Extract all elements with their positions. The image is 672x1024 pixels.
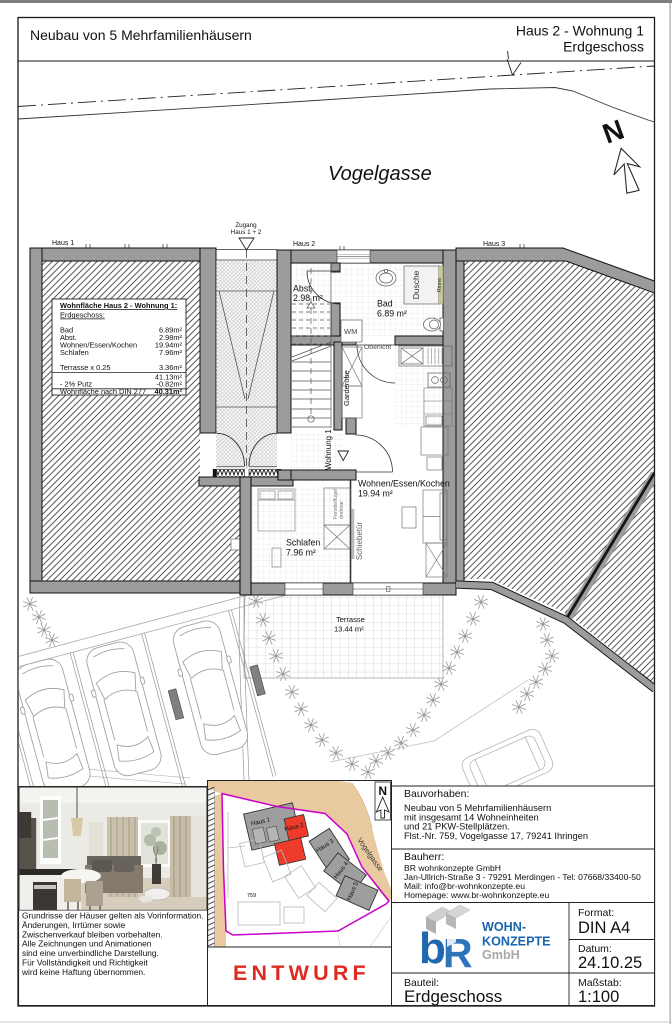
svg-text:WOHN-: WOHN-	[482, 920, 526, 934]
svg-text:7.96 m²: 7.96 m²	[286, 548, 316, 558]
svg-text:Schlafen: Schlafen	[60, 348, 89, 357]
svg-text:Erdgeschoss:: Erdgeschoss:	[60, 311, 105, 320]
svg-text:Terrasse: Terrasse	[336, 615, 365, 624]
svg-text:Erdgeschoss: Erdgeschoss	[404, 987, 502, 1006]
svg-text:Wohnfläche Haus 2 - Wohnung 1:: Wohnfläche Haus 2 - Wohnung 1:	[60, 301, 177, 310]
svg-text:Wohnung 1: Wohnung 1	[324, 429, 333, 470]
svg-text:Flst.-Nr. 759, Vogelgasse 17,: Flst.-Nr. 759, Vogelgasse 17, 79241 Ihri…	[404, 831, 588, 841]
svg-text:Format:: Format:	[578, 907, 614, 919]
svg-text:7.96m²: 7.96m²	[159, 348, 183, 357]
svg-text:ENTWURF: ENTWURF	[233, 961, 370, 985]
svg-text:Wohnfläche nach DIN 277: Wohnfläche nach DIN 277	[60, 387, 146, 396]
svg-text:Haus 2 - Wohnung 1: Haus 2 - Wohnung 1	[516, 23, 644, 39]
svg-text:wird keine Haftung übernommen.: wird keine Haftung übernommen.	[21, 967, 145, 977]
svg-text:Bauvorhaben:: Bauvorhaben:	[404, 788, 469, 800]
svg-text:19.94 m²: 19.94 m²	[358, 489, 393, 499]
svg-text:Schiebetür: Schiebetür	[355, 522, 364, 561]
svg-text:6.89 m²: 6.89 m²	[377, 309, 407, 319]
svg-text:Terrasse x 0.25: Terrasse x 0.25	[60, 363, 111, 372]
svg-text:Abst.: Abst.	[293, 284, 313, 294]
svg-text:Garderobe: Garderobe	[342, 370, 351, 406]
svg-text:Haus 3: Haus 3	[483, 241, 505, 248]
svg-text:Homepage: www.br-wohnkonzepte.: Homepage: www.br-wohnkonzepte.eu	[404, 890, 549, 900]
svg-text:Wohnen/Essen/Kochen: Wohnen/Essen/Kochen	[358, 479, 450, 489]
svg-text:Schlafen: Schlafen	[286, 538, 320, 548]
svg-text:759: 759	[247, 893, 256, 899]
svg-text:Haus 1 + 2: Haus 1 + 2	[231, 229, 262, 236]
svg-text:b: b	[419, 924, 446, 973]
svg-text:2.98 m²: 2.98 m²	[293, 293, 323, 303]
svg-text:KONZEPTE: KONZEPTE	[482, 935, 551, 949]
svg-text:Rinne: Rinne	[437, 278, 443, 292]
svg-text:13.44 m²: 13.44 m²	[334, 625, 364, 634]
svg-text:Haus 1: Haus 1	[52, 240, 74, 247]
svg-text:Vogelgasse: Vogelgasse	[328, 163, 432, 185]
svg-text:Bauherr:: Bauherr:	[404, 851, 444, 863]
svg-text:drehbar: drehbar	[339, 501, 345, 519]
svg-text:R: R	[443, 930, 473, 976]
svg-text:Oberlicht: Oberlicht	[364, 344, 391, 351]
svg-text:Dusche: Dusche	[411, 270, 421, 299]
svg-text:1:100: 1:100	[578, 988, 619, 1006]
svg-text:DIN A4: DIN A4	[578, 919, 630, 937]
svg-text:3.36m²: 3.36m²	[159, 363, 183, 372]
svg-text:Erdgeschoss: Erdgeschoss	[563, 39, 644, 55]
svg-text:Zugang: Zugang	[235, 222, 257, 229]
svg-text:GmbH: GmbH	[482, 948, 520, 962]
svg-text:24.10.25: 24.10.25	[578, 954, 642, 972]
svg-text:40.31m²: 40.31m²	[154, 387, 182, 396]
svg-text:Haus 2: Haus 2	[293, 241, 315, 248]
svg-text:WM: WM	[344, 327, 357, 336]
svg-text:Bad: Bad	[377, 299, 393, 309]
svg-text:Neubau von 5 Mehrfamilienhäuse: Neubau von 5 Mehrfamilienhäusern	[30, 27, 252, 43]
